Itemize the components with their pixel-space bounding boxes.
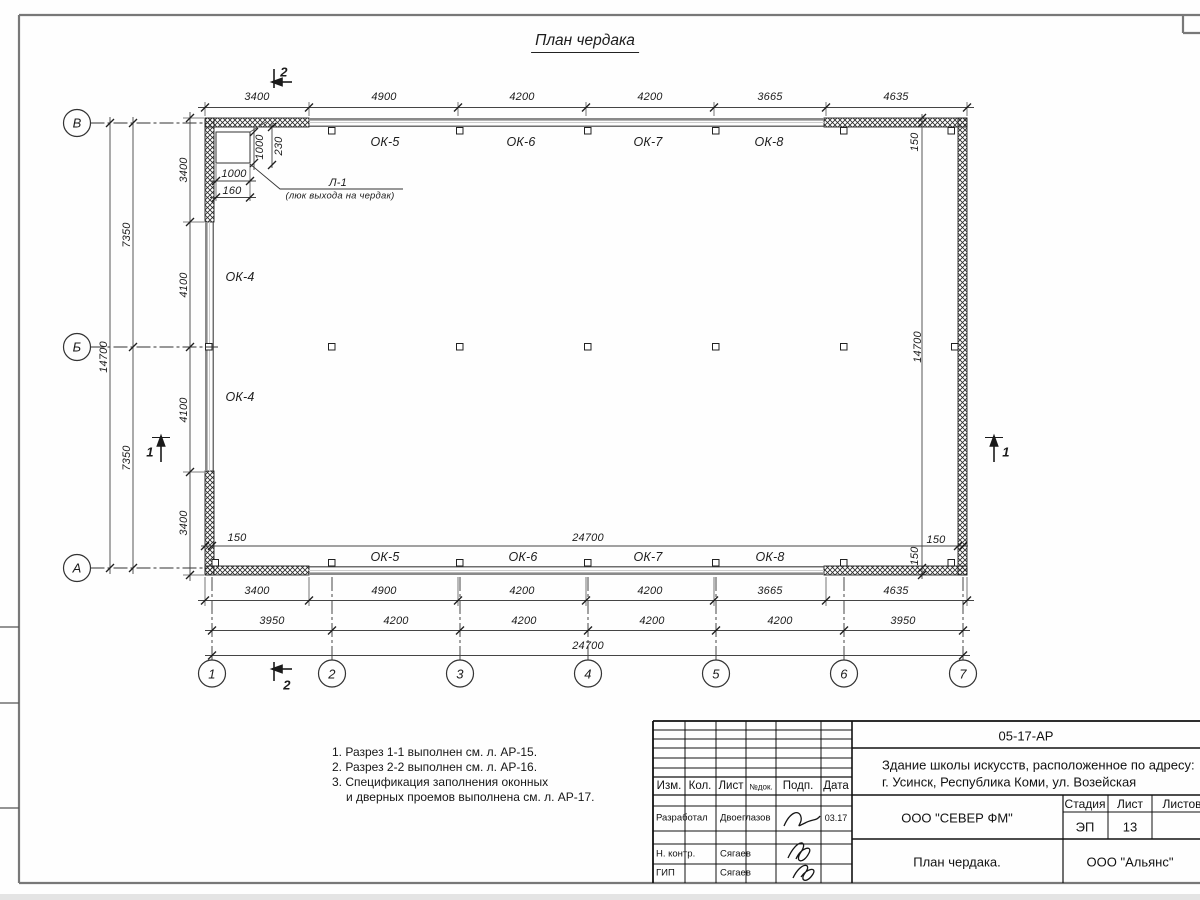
titleblock-header-izm: Изм. [657, 780, 682, 792]
dim-inner-height: 14700 [912, 331, 924, 363]
hatch-note: (люк выхода на чердак) [285, 191, 394, 202]
dim-bot2-2: 4200 [511, 615, 536, 627]
titleblock-address-1: Здание школы искусств, расположенное по … [882, 758, 1195, 773]
dim-top-3: 4200 [637, 91, 662, 103]
hatch-dim-inset: 230 [273, 137, 285, 156]
window-bands [206, 119, 824, 573]
roof-hatch-opening [216, 132, 250, 163]
axis-col-4: 4 [584, 667, 591, 682]
axis-col-3: 3 [456, 667, 463, 682]
dim-ledge-tr-v: 150 [909, 133, 921, 152]
dim-left2-0: 7350 [121, 222, 133, 247]
window-label-bottom-1: ОК-6 [508, 550, 537, 564]
hatch-dim-height: 1000 [254, 134, 266, 159]
titleblock-name-0: Двоеглазов [720, 813, 771, 824]
note-line-3: 3. Спецификация заполнения оконных [332, 775, 548, 789]
axis-col-7: 7 [959, 667, 966, 682]
dim-bot2-0: 3950 [259, 615, 284, 627]
dim-left2-1: 7350 [121, 445, 133, 470]
dim-ledge-bl: 150 [228, 532, 247, 544]
hatch-dim-width: 1000 [221, 168, 246, 180]
window-label-bottom-2: ОК-7 [633, 550, 662, 564]
dim-bot1-1: 4900 [371, 585, 396, 597]
dim-bot1-0: 3400 [244, 585, 269, 597]
dim-bot1-2: 4200 [509, 585, 534, 597]
titleblock-header-podp: Подп. [783, 780, 814, 792]
titleblock-name-2: Сягаев [720, 868, 751, 879]
scan-edge [0, 894, 1200, 900]
signature-scribbles [784, 813, 820, 881]
axis-col-1: 1 [208, 667, 215, 682]
section-marks [152, 69, 1003, 681]
frame-margin-ticks [0, 627, 19, 808]
dim-inner-width: 24700 [572, 532, 604, 544]
dim-ledge-br-v: 150 [909, 547, 921, 566]
window-label-bottom-0: ОК-5 [370, 550, 399, 564]
dim-bot2-5: 3950 [890, 615, 915, 627]
axis-row-a: А [73, 561, 82, 576]
axis-col-5: 5 [712, 667, 719, 682]
dim-ledge-br-h: 150 [927, 534, 946, 546]
window-label-top-1: ОК-6 [506, 135, 535, 149]
titleblock-doc-code: 05-17-АР [999, 729, 1054, 744]
section-mark-1-left: 1 [146, 445, 153, 460]
titleblock-header-list: Лист [719, 780, 744, 792]
window-label-top-0: ОК-5 [370, 135, 399, 149]
note-line-2: 2. Разрез 2-2 выполнен см. л. АР-16. [332, 760, 537, 774]
axis-row-b: Б [73, 340, 82, 355]
dim-bot1-5: 4635 [883, 585, 908, 597]
axis-col-6: 6 [840, 667, 847, 682]
dim-left1-3: 3400 [178, 510, 190, 535]
dim-top-2: 4200 [509, 91, 534, 103]
window-label-top-2: ОК-7 [633, 135, 662, 149]
section-mark-2-top: 2 [280, 65, 287, 80]
hatch-dim-offset: 160 [223, 185, 242, 197]
titleblock-sheet-value: 13 [1123, 820, 1137, 835]
dim-top-4: 3665 [757, 91, 782, 103]
titleblock-company: ООО "СЕВЕР ФМ" [901, 811, 1013, 826]
titleblock-header-data: Дата [823, 780, 848, 792]
window-label-bottom-3: ОК-8 [755, 550, 784, 564]
dim-top-5: 4635 [883, 91, 908, 103]
sheet-frame [19, 15, 1200, 883]
dim-bot2-3: 4200 [639, 615, 664, 627]
hatch-leader-line [250, 164, 403, 189]
titleblock-org: ООО "Альянс" [1087, 855, 1174, 870]
dim-left1-1: 4100 [178, 272, 190, 297]
axis-lines [91, 123, 964, 660]
extension-lines [183, 102, 967, 606]
titleblock-address-2: г. Усинск, Республика Коми, ул. Возейска… [882, 775, 1136, 790]
titleblock-role-2: ГИП [656, 868, 675, 879]
titleblock-name-1: Сягаев [720, 849, 751, 860]
section-mark-1-right: 1 [1002, 445, 1009, 460]
note-line-4: и дверных проемов выполнена см. л. АР-17… [346, 790, 594, 804]
titleblock-header-ndok: №док. [749, 783, 772, 792]
titleblock-sheet-label: Лист [1117, 797, 1143, 811]
dim-left-total: 14700 [98, 341, 110, 373]
titleblock-drawing-name: План чердака. [913, 855, 1001, 870]
section-mark-2-bottom: 2 [283, 678, 290, 693]
dim-top-0: 3400 [244, 91, 269, 103]
window-label-left-1: ОК-4 [225, 390, 254, 404]
dim-bot1-4: 3665 [757, 585, 782, 597]
drawing-sheet: План чердака 2 2 1 1 3400 4900 4200 4200… [0, 0, 1200, 900]
dim-left1-0: 3400 [178, 157, 190, 182]
page-title: План чердака [531, 32, 639, 53]
titleblock-stage-value: ЭП [1076, 820, 1095, 835]
titleblock-role-0: Разработал [656, 813, 708, 824]
dim-left1-2: 4100 [178, 397, 190, 422]
axis-col-2: 2 [328, 667, 335, 682]
dim-bot2-1: 4200 [383, 615, 408, 627]
dim-bot2-4: 4200 [767, 615, 792, 627]
titleblock-sheets-label: Листов [1163, 797, 1200, 811]
titleblock-header-kol: Кол. [689, 780, 712, 792]
note-line-1: 1. Разрез 1-1 выполнен см. л. АР-15. [332, 745, 537, 759]
dim-bot1-3: 4200 [637, 585, 662, 597]
titleblock-stage-label: Стадия [1065, 797, 1106, 811]
titleblock-role-1: Н. контр. [656, 849, 695, 860]
window-label-top-3: ОК-8 [754, 135, 783, 149]
axis-row-v: В [73, 116, 82, 131]
titleblock-date-0: 03.17 [825, 813, 848, 823]
dim-bot-total: 24700 [572, 640, 604, 652]
hatch-label: Л-1 [329, 177, 347, 189]
window-label-left-0: ОК-4 [225, 270, 254, 284]
dim-top-1: 4900 [371, 91, 396, 103]
